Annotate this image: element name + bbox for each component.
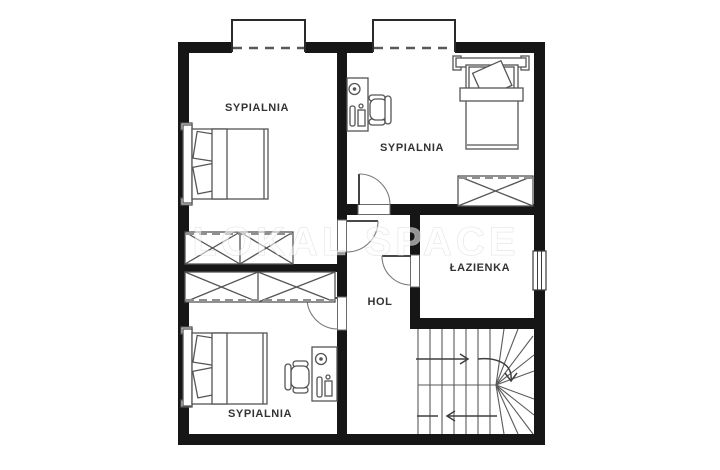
wardrobe-icon bbox=[458, 176, 533, 206]
desk-icon bbox=[347, 78, 368, 131]
double-bed-icon bbox=[181, 123, 268, 205]
stairs-icon bbox=[418, 329, 534, 434]
door-top-right-bedroom bbox=[358, 174, 390, 215]
room-label-bedroom-bottom: SYPIALNIA bbox=[228, 408, 292, 420]
office-chair-icon bbox=[285, 361, 309, 393]
desk-icon bbox=[312, 347, 337, 401]
dormer-window-icon bbox=[373, 20, 455, 52]
floor-plan-canvas: SYPIALNIA SYPIALNIA ŁAZIENKA HOL SYPIALN… bbox=[0, 0, 720, 470]
office-chair-icon bbox=[369, 95, 391, 125]
room-label-hall: HOL bbox=[367, 296, 392, 308]
dormer-window-icon bbox=[232, 20, 305, 52]
single-bed-icon bbox=[453, 56, 529, 149]
bathroom-window-icon bbox=[533, 251, 546, 290]
room-label-bedroom-top-left: SYPIALNIA bbox=[225, 102, 289, 114]
double-bed-icon bbox=[181, 327, 267, 407]
watermark: LOKAL SPACE bbox=[193, 220, 520, 264]
wardrobe-icon bbox=[185, 272, 335, 302]
room-label-bedroom-top-right: SYPIALNIA bbox=[380, 142, 444, 154]
